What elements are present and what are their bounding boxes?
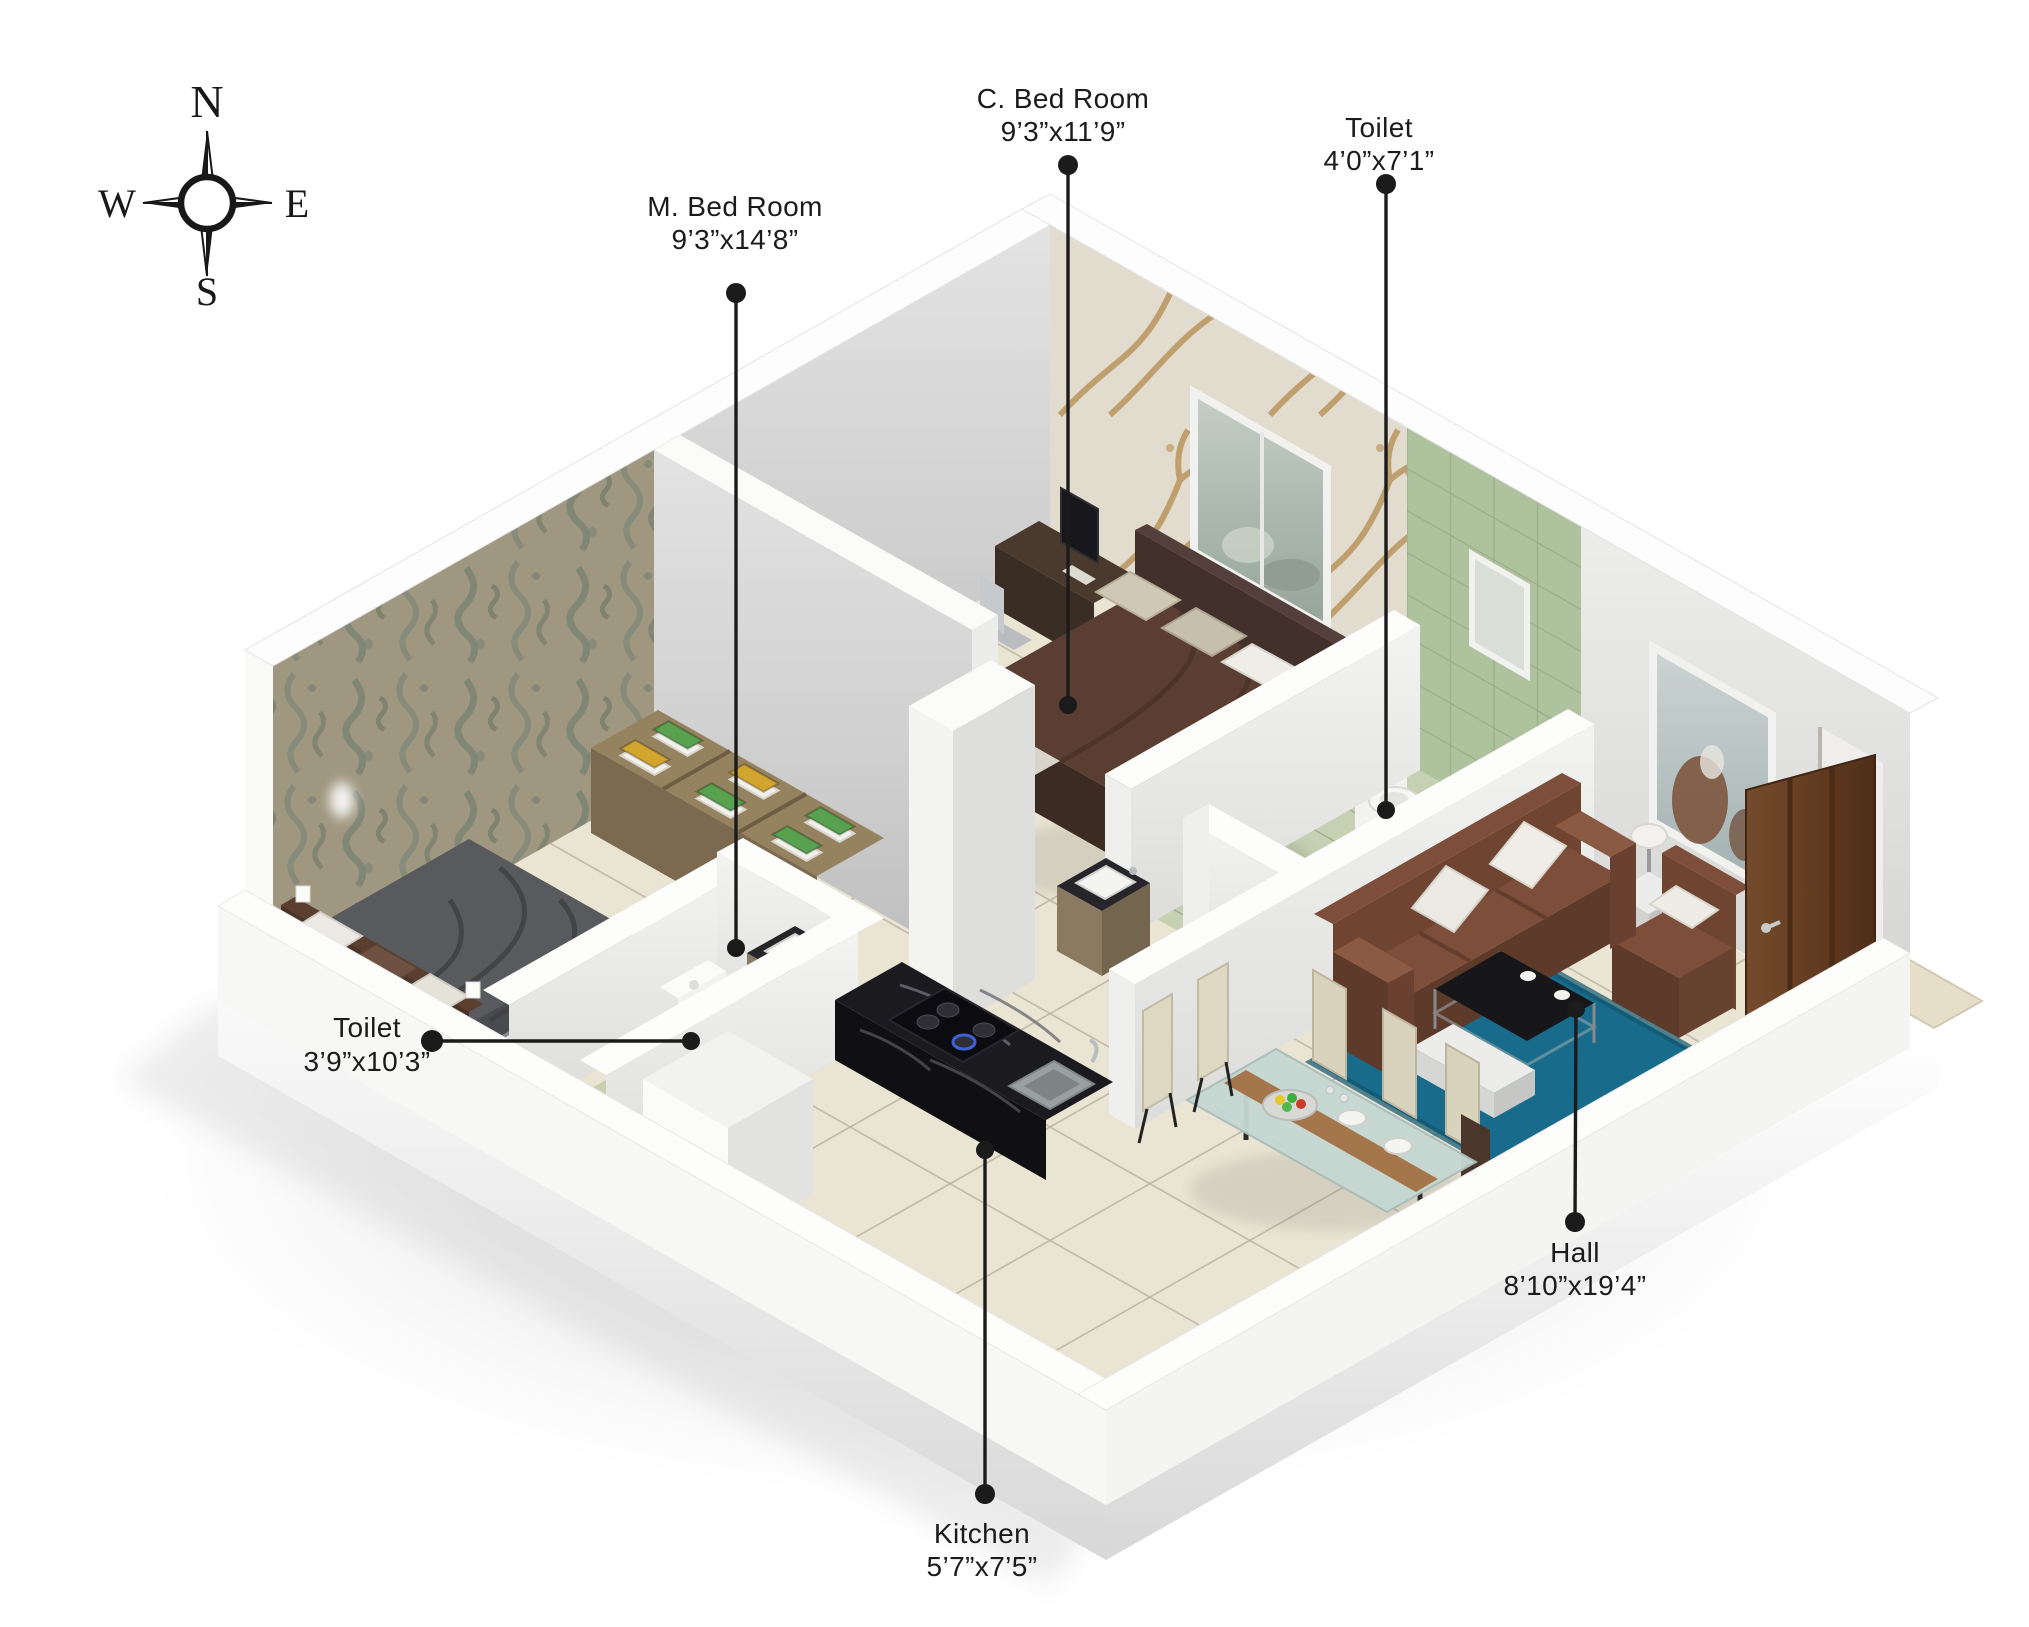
room-name: Kitchen (934, 1518, 1030, 1549)
room-dimensions: 4’0”x7’1” (1324, 145, 1435, 176)
floor-plan-render: C. Bed Room 9’3”x11’9” Toilet 4’0”x7’1” … (0, 0, 2029, 1627)
room-dimensions: 9’3”x14’8” (672, 224, 799, 255)
dinner-plate (1384, 1138, 1412, 1154)
bedside-lamp (296, 886, 310, 902)
room-dimensions: 5’7”x7’5” (927, 1551, 1038, 1582)
label-c-bedroom: C. Bed Room 9’3”x11’9” (977, 83, 1149, 147)
leader-dot (1377, 801, 1395, 819)
coffee-cup (1520, 971, 1536, 981)
coffee-cup (1554, 990, 1570, 1000)
compass-west-letter: W (98, 181, 136, 226)
label-m-bedroom: M. Bed Room 9’3”x14’8” (647, 191, 823, 255)
room-name: Hall (1550, 1237, 1600, 1268)
drinking-glass (1326, 1086, 1334, 1094)
stove-burner (937, 1003, 959, 1017)
stove-burner-lit (953, 1035, 975, 1049)
room-name: Toilet (1345, 112, 1413, 143)
drinking-glass (1340, 1094, 1348, 1102)
dinner-plate (1338, 1110, 1366, 1126)
room-dimensions: 8’10”x19’4” (1504, 1270, 1647, 1301)
room-name: M. Bed Room (647, 191, 823, 222)
dining-chair-near (1198, 963, 1228, 1080)
fruit-green2 (1282, 1102, 1292, 1112)
label-toilet-attached: Toilet 4’0”x7’1” (1324, 112, 1435, 176)
compass-circle (181, 177, 233, 229)
ctoilet-flush-button (689, 980, 699, 990)
dining-chair-near (1143, 994, 1172, 1111)
window-reflection-bed (1260, 559, 1320, 591)
leader-dot (1567, 1000, 1585, 1018)
dining-chair-far (1313, 970, 1346, 1079)
floor-plan-page: C. Bed Room 9’3”x11’9” Toilet 4’0”x7’1” … (0, 0, 2029, 1627)
dining-chair-far (1383, 1009, 1416, 1118)
bedside-lamp (466, 982, 480, 998)
room-name: C. Bed Room (977, 83, 1149, 114)
leader-dot (975, 1484, 995, 1504)
stove-burner (917, 1015, 939, 1029)
room-dimensions: 9’3”x11’9” (1001, 116, 1126, 147)
leader-line (1575, 1009, 1576, 1222)
compass-rose: N S W E (98, 76, 309, 314)
central-column (909, 660, 1035, 1026)
sofa-armrest-face (1610, 843, 1636, 949)
window-reflection-pillow (1222, 527, 1274, 563)
compass-north-letter: N (190, 76, 223, 127)
leader-dot (1565, 1212, 1585, 1232)
compass-south-letter: S (196, 269, 218, 314)
leader-dot (726, 283, 746, 303)
lamp-shade (1631, 824, 1667, 848)
leader-dot (1058, 155, 1078, 175)
fruit-red (1296, 1099, 1306, 1109)
compass-east-letter: E (285, 181, 309, 226)
room-name: Toilet (333, 1012, 401, 1043)
room-dimensions: 3’9”x10’3” (304, 1046, 431, 1077)
basin-faucet (1129, 867, 1137, 875)
leader-dot (1376, 174, 1396, 194)
stove-burner (973, 1023, 995, 1037)
wall-spotlight (330, 782, 354, 818)
leader-dot (727, 939, 745, 957)
wall-hall-divider-end (1109, 969, 1135, 1129)
leader-dot (1059, 696, 1077, 714)
fruit-green (1287, 1093, 1297, 1103)
leader-dot (976, 1141, 994, 1159)
leader-dot (682, 1032, 700, 1050)
column-front-right (953, 685, 1035, 1026)
window-reflection-pillow (1700, 745, 1724, 779)
